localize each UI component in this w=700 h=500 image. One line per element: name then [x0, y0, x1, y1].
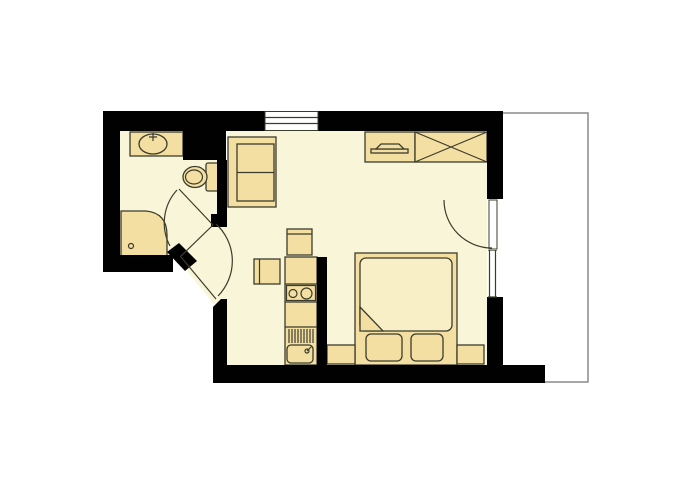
- nightstand-left: [327, 345, 355, 364]
- balcony-outline: [503, 113, 588, 382]
- left-wall: [103, 111, 120, 272]
- pillow-left: [366, 334, 402, 361]
- sink-drainer-hatch: [289, 329, 313, 343]
- floor-plan-canvas: [0, 0, 700, 500]
- kitchen-sink-basin: [287, 345, 313, 363]
- pillow-right: [411, 334, 443, 361]
- mattress: [360, 258, 452, 331]
- right-wall-top: [487, 111, 503, 199]
- top-window: [265, 112, 318, 131]
- nightstand-right: [457, 345, 484, 364]
- tv-icon: [376, 144, 404, 149]
- kitchen-partition-wall: [317, 257, 327, 369]
- fridge-unit: [287, 229, 312, 255]
- right-wall-bottom: [487, 297, 503, 383]
- floor-plan-drawing: [0, 0, 700, 500]
- balcony: [503, 113, 588, 382]
- corner-shower: [121, 211, 167, 257]
- bathroom-right-wall-foot: [211, 214, 227, 227]
- bathroom-bottom-wall: [103, 255, 173, 272]
- entrance-door-leaf: [489, 200, 497, 249]
- side-table: [254, 259, 280, 284]
- top-wall-right: [318, 111, 503, 131]
- duct-block: [183, 111, 226, 160]
